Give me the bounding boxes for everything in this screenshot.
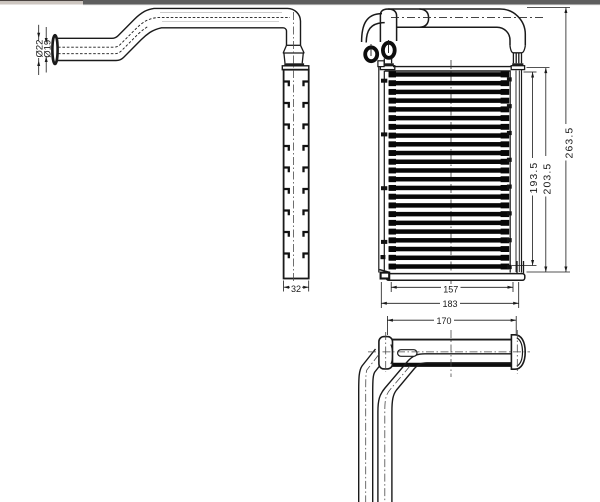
svg-text:183: 183 [442, 299, 457, 309]
svg-text:203.5: 203.5 [542, 163, 554, 195]
svg-text:193.5: 193.5 [528, 162, 540, 194]
svg-text:Ø19: Ø19 [42, 40, 53, 58]
svg-text:263.5: 263.5 [564, 127, 576, 159]
svg-text:157: 157 [443, 285, 458, 295]
svg-text:32: 32 [291, 284, 301, 294]
svg-text:170: 170 [436, 316, 451, 326]
